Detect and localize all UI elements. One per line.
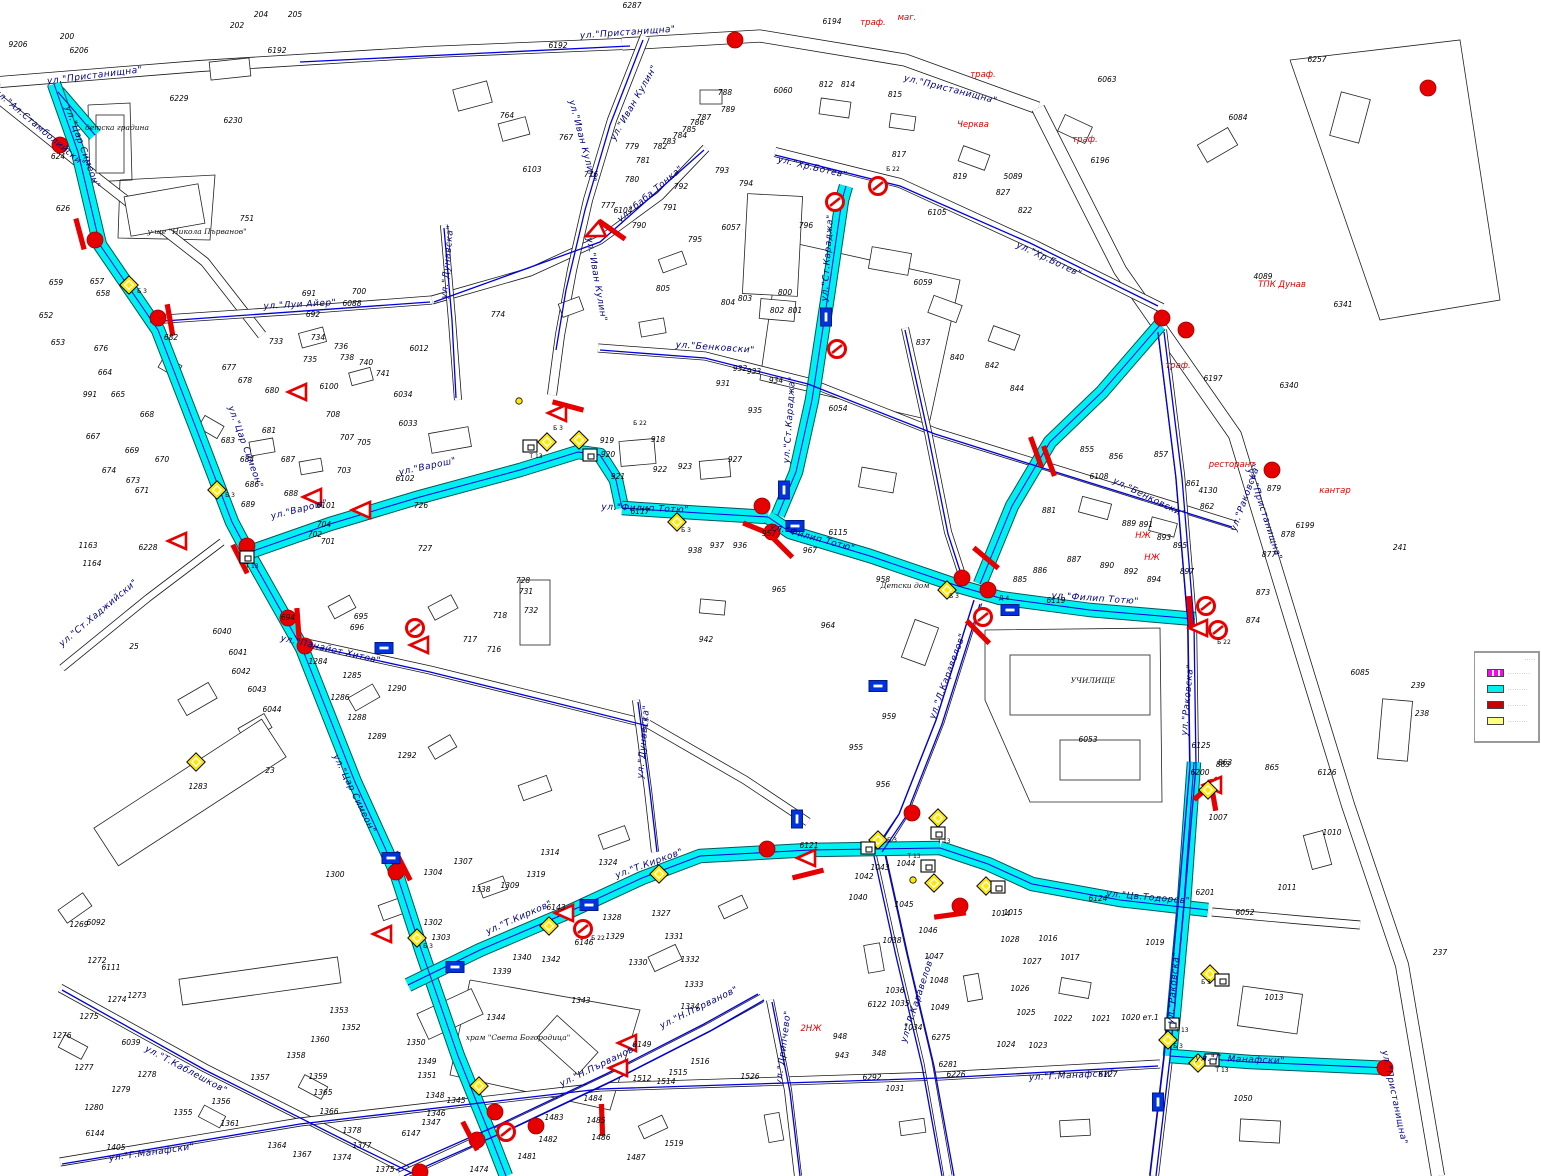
poi-label-red: траф. bbox=[970, 70, 996, 80]
parcel-number: 1353 bbox=[329, 1006, 348, 1015]
parcel-number: 943 bbox=[835, 1051, 850, 1060]
parcel-number: 738 bbox=[340, 353, 355, 362]
parcel-number: 791 bbox=[663, 203, 677, 212]
parcel-number: 23 bbox=[265, 766, 275, 775]
parcel-number: 764 bbox=[500, 111, 515, 120]
parcel-number: 1474 bbox=[469, 1165, 488, 1174]
parcel-number: 1340 bbox=[512, 953, 531, 962]
parcel-number: 1515 bbox=[668, 1068, 687, 1077]
street-name-label: ул."Н.Първанов" bbox=[658, 985, 740, 1032]
parcel-number: 6201 bbox=[1195, 888, 1214, 897]
parcel-number: 842 bbox=[985, 361, 1000, 370]
parcel-number: 1342 bbox=[541, 955, 560, 964]
parcel-number: 700 bbox=[352, 287, 367, 296]
parcel-number: 1309 bbox=[500, 881, 519, 890]
building-footprint bbox=[1377, 699, 1412, 761]
building-footprint bbox=[1010, 655, 1150, 715]
parcel-number: 1273 bbox=[127, 991, 146, 1000]
parcel-number: 1351 bbox=[417, 1071, 436, 1080]
parcel-number: 6059 bbox=[913, 278, 932, 287]
parcel-number: 664 bbox=[98, 368, 113, 377]
parcel-number: 6043 bbox=[247, 685, 266, 694]
parcel-number: 705 bbox=[357, 438, 372, 447]
parcel-number: 932 bbox=[733, 364, 748, 373]
closed-valve-icon[interactable] bbox=[1154, 310, 1170, 326]
parcel-number: 6230 bbox=[223, 116, 242, 125]
legend-swatch-icon bbox=[1487, 717, 1504, 725]
symbol-code-label: Б 22 bbox=[1217, 639, 1231, 646]
warning-triangle-icon[interactable] bbox=[373, 926, 391, 942]
parcel-number: 1164 bbox=[82, 559, 101, 568]
parcel-number: 897 bbox=[1180, 567, 1195, 576]
legend-item: ········· bbox=[1487, 713, 1536, 729]
parcel-number: 692 bbox=[306, 310, 321, 319]
parcel-number: 933 bbox=[747, 367, 762, 376]
parcel-number: 1276 bbox=[52, 1031, 71, 1040]
parcel-number: 1011 bbox=[1277, 883, 1296, 892]
warning-triangle-icon[interactable] bbox=[548, 405, 566, 421]
parcel-number: 889 bbox=[1122, 519, 1137, 528]
valve-box-inner bbox=[588, 454, 594, 459]
parcel-number: 1025 bbox=[1016, 1008, 1035, 1017]
closed-valve-icon[interactable] bbox=[87, 232, 103, 248]
parcel-number: 6257 bbox=[1307, 55, 1326, 64]
parcel-number: 6088 bbox=[342, 299, 361, 308]
parcel-number: 674 bbox=[102, 466, 117, 475]
valve-box-inner bbox=[245, 556, 251, 561]
parcel-number: 1352 bbox=[341, 1023, 360, 1032]
parcel-number: 673 bbox=[126, 476, 141, 485]
parcel-number: 1356 bbox=[211, 1097, 230, 1106]
parcel-number: 857 bbox=[1154, 450, 1169, 459]
parcel-number: 1338 bbox=[471, 885, 490, 894]
parcel-number: 802 bbox=[770, 306, 785, 315]
building-footprint bbox=[988, 326, 1020, 351]
parcel-number: 688 bbox=[284, 489, 299, 498]
closed-valve-icon[interactable] bbox=[528, 1118, 544, 1134]
closed-valve-icon[interactable] bbox=[759, 841, 775, 857]
parcel-number: 1042 bbox=[854, 872, 873, 881]
parcel-number: 735 bbox=[303, 355, 318, 364]
parcel-number: 919 bbox=[600, 436, 615, 445]
parcel-number: 863 bbox=[1218, 758, 1233, 767]
parcel-number: 6199 bbox=[1295, 521, 1314, 530]
parcel-number: 6228 bbox=[138, 543, 157, 552]
parcel-number: 822 bbox=[1018, 206, 1033, 215]
road-surface bbox=[648, 724, 808, 822]
building-footprint bbox=[859, 467, 897, 493]
parcel-number: 1346 bbox=[426, 1109, 445, 1118]
parcel-number: 6122 bbox=[867, 1000, 886, 1009]
closed-valve-icon[interactable] bbox=[1178, 322, 1194, 338]
valve-box-inner bbox=[936, 832, 942, 837]
map-viewport[interactable]: 9206200620620220420561926192622962307516… bbox=[0, 0, 1541, 1176]
parcel-number: 1045 bbox=[894, 900, 913, 909]
building-footprint bbox=[699, 599, 725, 615]
parcel-number: 716 bbox=[487, 645, 502, 654]
parcel-number: 1319 bbox=[526, 870, 545, 879]
parcel-number: 1278 bbox=[137, 1070, 156, 1079]
parcel-number: 718 bbox=[493, 611, 508, 620]
parcel-number: 701 bbox=[321, 537, 335, 546]
closed-valve-icon[interactable] bbox=[954, 570, 970, 586]
building-footprint bbox=[1060, 1119, 1091, 1137]
parcel-number: 1405 bbox=[106, 1143, 125, 1152]
parcel-number: 1344 bbox=[486, 1013, 505, 1022]
parcel-number: 751 bbox=[240, 214, 254, 223]
parcel-number: 202 bbox=[230, 21, 245, 30]
symbol-code-label: Т 13 bbox=[244, 563, 258, 570]
parcel-number: 1355 bbox=[173, 1108, 192, 1117]
parcel-number: 886 bbox=[1033, 566, 1048, 575]
blue-sign-icon[interactable] bbox=[869, 681, 887, 692]
building-footprint bbox=[658, 251, 686, 273]
symbol-code-label: Т 13 bbox=[1214, 1067, 1228, 1074]
parcel-number: 678 bbox=[238, 376, 253, 385]
valve-box-inner bbox=[1220, 979, 1226, 984]
parcel-number: 1031 bbox=[885, 1084, 904, 1093]
parcel-number: 6100 bbox=[319, 382, 338, 391]
legend-swatch-icon bbox=[1487, 701, 1504, 709]
parcel-number: 6287 bbox=[622, 1, 641, 10]
building-footprint bbox=[328, 595, 356, 619]
closed-valve-icon[interactable] bbox=[150, 310, 166, 326]
parcel-number: 827 bbox=[996, 188, 1011, 197]
parcel-number: 1357 bbox=[250, 1073, 269, 1082]
parcel-number: 921 bbox=[611, 472, 625, 481]
parcel-number: 728 bbox=[516, 576, 531, 585]
parcel-number: 677 bbox=[222, 363, 237, 372]
parcel-number: 6103 bbox=[522, 165, 541, 174]
parcel-number: 792 bbox=[674, 182, 689, 191]
legend-label: ········· bbox=[1508, 719, 1528, 724]
parcel-number: 6124 bbox=[1088, 894, 1107, 903]
building-footprint bbox=[889, 113, 916, 130]
parcel-number: 1049 bbox=[930, 1003, 949, 1012]
parcel-number: 687 bbox=[281, 455, 296, 464]
parcel-number: 1022 bbox=[1053, 1014, 1072, 1023]
parcel-number: 9206 bbox=[8, 40, 27, 49]
blue-sign-icon[interactable] bbox=[446, 962, 464, 973]
parcel-number: 1484 bbox=[583, 1094, 602, 1103]
symbol-code-label: Б 3 bbox=[1201, 979, 1211, 986]
poi-label: Детски дом bbox=[879, 581, 929, 590]
parcel-number: 881 bbox=[1042, 506, 1056, 515]
parcel-number: 6292 bbox=[862, 1073, 881, 1082]
legend-label: ········· bbox=[1508, 703, 1528, 708]
street-name-label: ул."Панайот Хитов" bbox=[278, 633, 381, 666]
closed-valve-icon[interactable] bbox=[727, 32, 743, 48]
closed-valve-icon[interactable] bbox=[1420, 80, 1436, 96]
valve-box-inner bbox=[996, 886, 1002, 891]
parcel-number: 965 bbox=[772, 585, 787, 594]
street-name-label: ул."Иван Кулин" bbox=[583, 236, 608, 323]
poi-label: храм "Света Богородица" bbox=[466, 1033, 570, 1042]
building-footprint bbox=[638, 1115, 667, 1139]
parcel-number: 1328 bbox=[602, 913, 621, 922]
parcel-number: 1526 bbox=[740, 1072, 759, 1081]
parcel-number: 1331 bbox=[664, 932, 683, 941]
parcel-number: 6125 bbox=[1191, 741, 1210, 750]
parcel-number: 204 bbox=[254, 10, 269, 19]
block-outline bbox=[1290, 40, 1500, 320]
city-water-network-map[interactable]: 9206200620620220420561926192622962307516… bbox=[0, 0, 1541, 1176]
blue-sign-icon[interactable] bbox=[375, 643, 393, 654]
parcel-number: 6229 bbox=[169, 94, 188, 103]
parcel-number: 6044 bbox=[262, 705, 281, 714]
parcel-number: 959 bbox=[882, 712, 897, 721]
warning-triangle-icon[interactable] bbox=[168, 533, 186, 549]
parcel-number: 6085 bbox=[1350, 668, 1369, 677]
parcel-number: 1028 bbox=[1000, 935, 1019, 944]
parcel-number: 1284 bbox=[308, 657, 327, 666]
parcel-number: 1364 bbox=[267, 1141, 286, 1150]
parcel-number: 682 bbox=[164, 333, 179, 342]
parcel-number: 1514 bbox=[656, 1077, 675, 1086]
parcel-number: 696 bbox=[350, 623, 365, 632]
parcel-number: 890 bbox=[1100, 561, 1115, 570]
parcel-number: 657 bbox=[90, 277, 105, 286]
legend-swatch-icon bbox=[1487, 669, 1504, 677]
parcel-number: 6197 bbox=[1203, 374, 1222, 383]
parcel-number: 727 bbox=[418, 544, 433, 553]
parcel-number: 767 bbox=[559, 133, 574, 142]
legend-header: ····· bbox=[1487, 657, 1536, 665]
parcel-number: 891 bbox=[1139, 520, 1153, 529]
parcel-number: 936 bbox=[733, 541, 748, 550]
parcel-number: 6042 bbox=[231, 667, 250, 676]
parcel-number: 676 bbox=[94, 344, 109, 353]
parcel-number: 1361 bbox=[220, 1119, 239, 1128]
parcel-number: 237 bbox=[1433, 948, 1448, 957]
parcel-number: 920 bbox=[601, 450, 616, 459]
warning-triangle-icon[interactable] bbox=[410, 637, 428, 653]
parcel-number: 6033 bbox=[398, 419, 417, 428]
closure-bar-icon[interactable] bbox=[934, 910, 966, 920]
parcel-number: 934 bbox=[769, 376, 784, 385]
parcel-number: 667 bbox=[86, 432, 101, 441]
parcel-number: 726 bbox=[414, 501, 429, 510]
street-name-label: ул."Филип Тотю" bbox=[600, 502, 689, 515]
parcel-number: 1359 bbox=[308, 1072, 327, 1081]
parcel-number: 774 bbox=[491, 310, 506, 319]
blue-sign-icon[interactable] bbox=[792, 810, 803, 828]
parcel-number: 6126 bbox=[1317, 768, 1336, 777]
parcel-number: 1035 bbox=[890, 999, 909, 1008]
building-footprint bbox=[179, 957, 341, 1005]
symbol-code-label: Т 13 bbox=[936, 838, 950, 845]
poi-label-red: траф. bbox=[1072, 135, 1098, 145]
building-footprint bbox=[718, 895, 747, 919]
parcel-number: 1302 bbox=[423, 918, 442, 927]
poi-label-red: кантар bbox=[1319, 486, 1350, 496]
poi-label-red: НЖ bbox=[1144, 553, 1160, 563]
parcel-number: 873 bbox=[1256, 588, 1271, 597]
parcel-number: 1300 bbox=[325, 870, 344, 879]
parcel-number: 740 bbox=[359, 358, 374, 367]
closed-valve-icon[interactable] bbox=[1264, 462, 1280, 478]
parcel-number: 1350 bbox=[406, 1038, 425, 1047]
parcel-number: 1366 bbox=[319, 1107, 338, 1116]
parcel-number: 200 bbox=[60, 32, 75, 41]
parcel-number: 6105 bbox=[927, 208, 946, 217]
parcel-number: 239 bbox=[1411, 681, 1426, 690]
building-footprint bbox=[1078, 496, 1111, 519]
parcel-number: 804 bbox=[721, 298, 736, 307]
parcel-number: 683 bbox=[221, 436, 236, 445]
closed-valve-icon[interactable] bbox=[487, 1104, 503, 1120]
symbol-code-label: Б 3 bbox=[225, 492, 235, 499]
building-footprint bbox=[299, 458, 323, 475]
parcel-number: 814 bbox=[841, 80, 856, 89]
legend-label: ·········· bbox=[1508, 671, 1531, 676]
small-hydrant-icon[interactable] bbox=[910, 877, 916, 883]
parcel-number: 741 bbox=[376, 369, 390, 378]
parcel-number: 800 bbox=[778, 288, 793, 297]
parcel-number: 964 bbox=[821, 621, 836, 630]
parcel-number: 1377 bbox=[352, 1141, 371, 1150]
building-footprint bbox=[1330, 92, 1371, 143]
parcel-number: 1485 bbox=[586, 1116, 605, 1125]
building-footprint bbox=[209, 58, 251, 80]
parcel-number: 855 bbox=[1080, 445, 1095, 454]
parcel-number: 1343 bbox=[571, 996, 590, 1005]
poi-label-red: Черква bbox=[957, 120, 989, 130]
parcel-number: 1016 bbox=[1038, 934, 1057, 943]
closure-bar-icon[interactable] bbox=[792, 868, 824, 881]
parcel-number: 1339 bbox=[492, 967, 511, 976]
building-footprint bbox=[928, 295, 962, 322]
closure-bar-icon[interactable] bbox=[73, 218, 86, 250]
parcel-number: 6194 bbox=[822, 17, 841, 26]
parcel-number: 1304 bbox=[423, 868, 442, 877]
parcel-number: 238 bbox=[1415, 709, 1430, 718]
parcel-number: 6060 bbox=[773, 86, 792, 95]
parcel-number: 671 bbox=[135, 486, 149, 495]
parcel-number: 205 bbox=[288, 10, 303, 19]
legend-item: ········· bbox=[1487, 697, 1536, 713]
parcel-number: 1348 bbox=[425, 1091, 444, 1100]
parcel-number: 668 bbox=[140, 410, 155, 419]
parcel-number: 794 bbox=[739, 179, 754, 188]
parcel-number: 6147 bbox=[401, 1129, 420, 1138]
parcel-number: 670 bbox=[155, 455, 170, 464]
parcel-number: 1516 bbox=[690, 1057, 709, 1066]
parcel-number: 6121 bbox=[799, 841, 818, 850]
parcel-number: 6341 bbox=[1333, 300, 1352, 309]
legend-swatch-icon bbox=[1487, 685, 1504, 693]
parcel-number: 956 bbox=[876, 780, 891, 789]
blue-sign-icon[interactable] bbox=[821, 308, 832, 326]
building-footprint bbox=[868, 247, 911, 276]
parcel-number: 1027 bbox=[1022, 957, 1041, 966]
parcel-number: 1015 bbox=[1003, 908, 1022, 917]
parcel-number: 6144 bbox=[85, 1129, 104, 1138]
legend-label: ········· bbox=[1508, 687, 1528, 692]
parcel-number: 1275 bbox=[79, 1012, 98, 1021]
valve-box-inner bbox=[866, 847, 872, 852]
parcel-number: 793 bbox=[715, 166, 730, 175]
blue-sign-icon[interactable] bbox=[1001, 605, 1019, 616]
parcel-number: 1007 bbox=[1208, 813, 1227, 822]
symbol-code-label: Б 22 bbox=[633, 420, 647, 427]
building-footprint bbox=[648, 944, 682, 971]
parcel-number: 801 bbox=[788, 306, 802, 315]
parcel-number: 731 bbox=[519, 587, 533, 596]
valve-box-inner bbox=[926, 865, 932, 870]
parcel-number: 788 bbox=[718, 88, 733, 97]
parcel-number: 1345 bbox=[446, 1096, 465, 1105]
building-footprint bbox=[1239, 1119, 1280, 1143]
building-footprint bbox=[1059, 978, 1091, 999]
street-name-label: ул."Пристанищна" bbox=[1379, 1049, 1409, 1146]
street-name-label: ул."Бенковски" bbox=[1110, 476, 1187, 520]
closed-valve-icon[interactable] bbox=[980, 582, 996, 598]
building-footprint bbox=[178, 682, 217, 715]
parcel-number: 1019 bbox=[1145, 938, 1164, 947]
parcel-number: 1347 bbox=[421, 1118, 440, 1127]
legend-item: ········· bbox=[1487, 681, 1536, 697]
parcel-number: 1290 bbox=[387, 684, 406, 693]
closed-valve-icon[interactable] bbox=[754, 498, 770, 514]
closed-valve-icon[interactable] bbox=[904, 805, 920, 821]
symbol-code-label: Б 3 bbox=[553, 425, 563, 432]
parcel-number: 6226 bbox=[946, 1070, 965, 1079]
small-hydrant-icon[interactable] bbox=[516, 398, 522, 404]
parcel-number: 1043 bbox=[870, 863, 889, 872]
parcel-number: 1487 bbox=[626, 1153, 645, 1162]
parcel-number: 6115 bbox=[828, 528, 847, 537]
parcel-number: 1327 bbox=[651, 909, 670, 918]
blue-sign-icon[interactable] bbox=[1153, 1093, 1164, 1111]
symbol-code-label: Т 13 bbox=[1174, 1027, 1188, 1034]
parcel-number: 6034 bbox=[393, 390, 412, 399]
parcel-number: 1333 bbox=[684, 980, 703, 989]
parcel-number: 923 bbox=[678, 462, 693, 471]
parcel-number: 1292 bbox=[397, 751, 416, 760]
parcel-number: 25 bbox=[129, 642, 139, 651]
parcel-number: 937 bbox=[710, 541, 725, 550]
blue-sign-icon[interactable] bbox=[580, 900, 598, 911]
parcel-number: 1023 bbox=[1028, 1041, 1047, 1050]
parcel-number: 837 bbox=[916, 338, 931, 347]
parcel-number: 669 bbox=[125, 446, 140, 455]
warning-triangle-icon[interactable] bbox=[288, 384, 306, 400]
parcel-number: 653 bbox=[51, 338, 66, 347]
parcel-number: 6057 bbox=[721, 223, 740, 232]
closed-valve-icon[interactable] bbox=[412, 1164, 428, 1176]
parcel-number: 1365 bbox=[313, 1088, 332, 1097]
parcel-number: 1289 bbox=[367, 732, 386, 741]
parcel-number: 805 bbox=[656, 284, 671, 293]
blue-sign-icon[interactable] bbox=[779, 481, 790, 499]
street-name-label: ул."Варош" bbox=[397, 456, 457, 478]
poi-label-red: траф. bbox=[1165, 361, 1191, 371]
parcel-number: 1024 bbox=[996, 1040, 1015, 1049]
parcel-number: 1050 bbox=[1233, 1094, 1252, 1103]
parcel-number: 948 bbox=[833, 1032, 848, 1041]
parcel-number: 892 bbox=[1124, 567, 1139, 576]
parcel-number: 787 bbox=[697, 113, 712, 122]
parcel-number: 935 bbox=[748, 406, 763, 415]
parcel-number: 1020 ет.1 bbox=[1121, 1013, 1159, 1022]
parcel-number: 895 bbox=[1173, 541, 1188, 550]
parcel-number: 348 bbox=[872, 1049, 887, 1058]
parcel-number: 733 bbox=[269, 337, 284, 346]
parcel-number: 781 bbox=[636, 156, 650, 165]
parcel-number: 874 bbox=[1246, 616, 1261, 625]
blue-sign-icon[interactable] bbox=[382, 853, 400, 864]
